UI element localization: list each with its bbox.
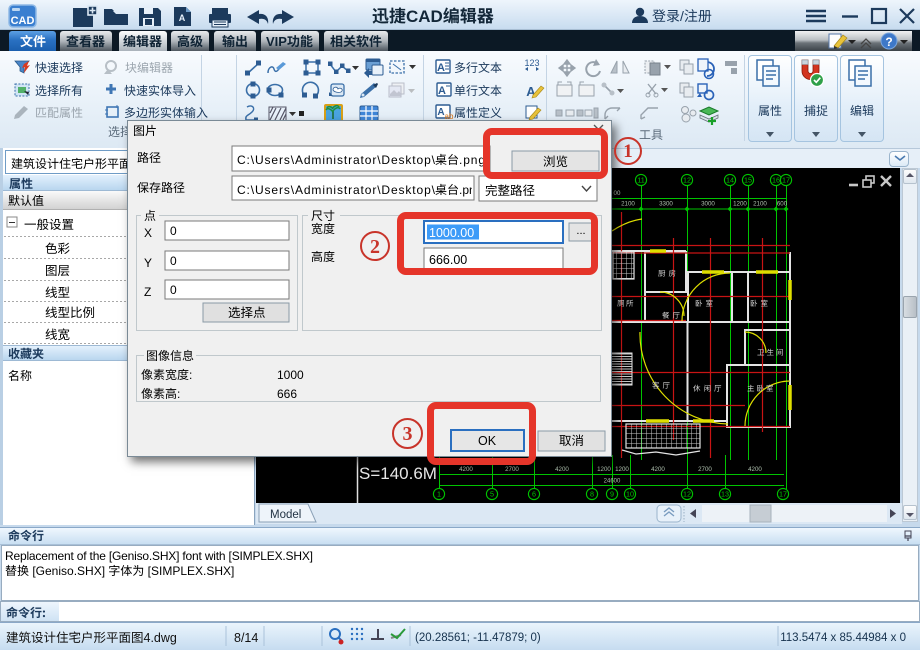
svg-text:Z: Z [144,285,151,299]
svg-text:10: 10 [626,490,634,499]
svg-text:VIP: VIP [266,34,287,49]
svg-text:9: 9 [610,490,614,499]
svg-text:/: / [680,8,684,24]
svg-text:12: 12 [683,490,691,499]
svg-text:1200: 1200 [615,466,629,473]
svg-text:12: 12 [683,176,691,185]
svg-text:0: 0 [170,254,177,268]
svg-text:8: 8 [590,490,594,499]
svg-text:14: 14 [726,176,734,185]
svg-text:Y: Y [144,256,152,270]
svg-text::: : [189,368,192,382]
svg-text:1: 1 [437,490,441,499]
svg-text:13: 13 [721,490,729,499]
svg-text:4200: 4200 [459,466,473,473]
svg-text:A: A [437,62,445,74]
svg-text:2700: 2700 [698,466,712,473]
svg-text:CAD: CAD [11,15,35,27]
svg-text:2700: 2700 [505,466,519,473]
svg-text:1000: 1000 [277,368,304,382]
svg-text:Replacement of the [Geniso.SHX: Replacement of the [Geniso.SHX] font wit… [5,549,313,563]
svg-text:CAD: CAD [406,7,443,26]
svg-text:(20.28561; -11.47879; 0): (20.28561; -11.47879; 0) [415,632,541,644]
svg-text:5: 5 [490,490,494,499]
svg-text:4200: 4200 [748,466,762,473]
svg-text:?: ? [885,35,892,49]
svg-text:3000: 3000 [701,201,715,208]
svg-text:24600: 24600 [604,479,621,485]
svg-text:123: 123 [524,58,539,68]
svg-text:C:\Users\Administrator\Desktop: C:\Users\Administrator\Desktop\ [237,153,436,167]
svg-text:X: X [144,226,152,240]
svg-text:15: 15 [744,176,752,185]
svg-text:113.5474 x 85.44984 x 0: 113.5474 x 85.44984 x 0 [780,632,906,644]
svg-text:Model: Model [270,509,301,521]
svg-text:4.dwg: 4.dwg [144,631,177,645]
svg-text:.png: .png [459,153,485,167]
svg-text:1200: 1200 [597,466,611,473]
svg-text:A: A [438,85,446,97]
svg-text:11: 11 [637,176,644,185]
svg-text:16: 16 [772,176,780,185]
svg-text:17: 17 [779,490,787,499]
svg-text:6: 6 [532,490,536,499]
svg-text:A: A [179,13,186,23]
svg-text:1200: 1200 [733,201,747,208]
svg-text:00: 00 [614,190,621,197]
svg-text:2100: 2100 [753,201,767,208]
svg-text:0: 0 [170,224,177,238]
svg-text:C:\Users\Administrator\Desktop: C:\Users\Administrator\Desktop\ [237,183,436,197]
svg-text:S=140.6M: S=140.6M [359,464,437,483]
svg-text:3300: 3300 [659,201,673,208]
svg-text:[Geniso.SHX]: [Geniso.SHX] [29,564,108,578]
svg-text::: : [177,387,180,401]
svg-text:8/14: 8/14 [234,631,258,645]
svg-text:4200: 4200 [555,466,569,473]
svg-text:0: 0 [170,283,177,297]
svg-text:666: 666 [277,387,297,401]
svg-text:4200: 4200 [651,466,665,473]
svg-text:17: 17 [782,176,790,185]
svg-text:A: A [437,107,444,118]
svg-text:600: 600 [777,201,788,208]
svg-text:2100: 2100 [621,201,635,208]
svg-text:[SIMPLEX.SHX]: [SIMPLEX.SHX] [144,564,234,578]
